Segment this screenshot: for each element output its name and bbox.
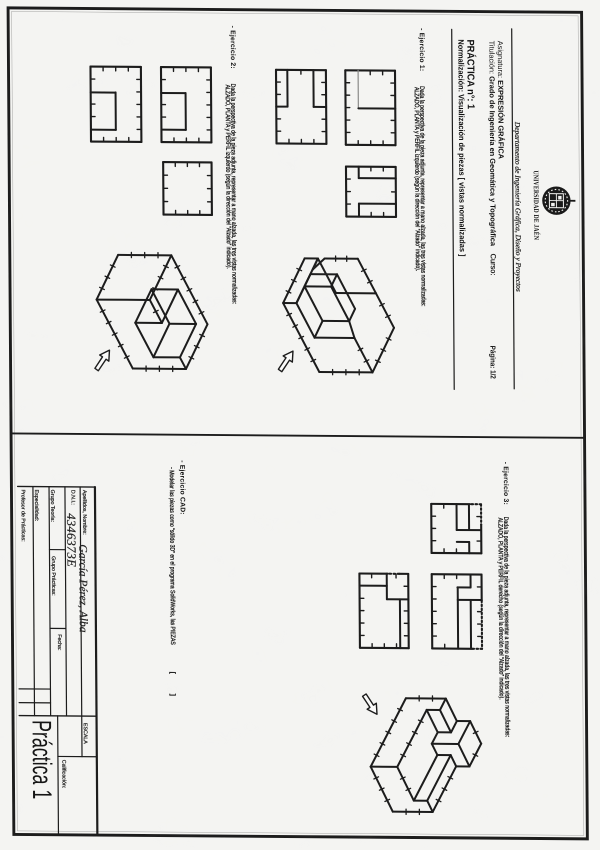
svg-text:ALZADO, PLANTA y PERFIL izquie: ALZADO, PLANTA y PERFIL izquierdo (según… bbox=[413, 87, 421, 272]
svg-text:4346373E: 4346373E bbox=[64, 513, 78, 567]
svg-text:]: ] bbox=[169, 694, 176, 696]
svg-text:D.N.I.:: D.N.I.: bbox=[69, 490, 75, 505]
svg-text:Normalización: Visualización d: Normalización: Visualización de piezas [… bbox=[456, 39, 467, 257]
svg-text:- Ejercicio CAD:: - Ejercicio CAD: bbox=[178, 460, 185, 515]
svg-text:Curso:: Curso: bbox=[489, 254, 498, 276]
svg-text:- Ejercicio 3:: - Ejercicio 3: bbox=[502, 462, 509, 505]
svg-text:- Ejercicio 1:: - Ejercicio 1: bbox=[418, 28, 425, 71]
svg-text:Grupo Prácticas:: Grupo Prácticas: bbox=[50, 556, 56, 595]
svg-text:Página: 1/2: Página: 1/2 bbox=[488, 346, 496, 379]
svg-text:Profesor de Prácticas:: Profesor de Prácticas: bbox=[19, 489, 25, 541]
svg-text:Departamento de Ingeniería Grá: Departamento de Ingeniería Gráfica, Dise… bbox=[513, 121, 523, 292]
svg-text:- Ejercicio 2:: - Ejercicio 2: bbox=[229, 26, 236, 69]
svg-text:Fecha:: Fecha: bbox=[56, 634, 62, 650]
svg-text:Asignatura: EXPRESIÓN GRÁFICA: Asignatura: EXPRESIÓN GRÁFICA bbox=[496, 41, 506, 160]
svg-text:Especialidad:: Especialidad: bbox=[33, 490, 39, 522]
svg-text:Titulación: Grado de Ingenierí: Titulación: Grado de Ingeniería en Geomá… bbox=[487, 41, 497, 247]
svg-text:Práctica 1: Práctica 1 bbox=[27, 720, 58, 799]
svg-text:Apellidos, Nombre:: Apellidos, Nombre: bbox=[81, 490, 87, 535]
svg-text:UNIVERSIDAD DE JAÉN: UNIVERSIDAD DE JAÉN bbox=[531, 170, 540, 240]
svg-text:[: [ bbox=[169, 672, 176, 675]
svg-text:ESCALA: ESCALA bbox=[82, 723, 88, 744]
svg-text:- Modelar las piezas como “sól: - Modelar las piezas como “sólido 3D” en… bbox=[168, 467, 176, 645]
svg-text:ALZADO, PLANTA y PERFIL izquie: ALZADO, PLANTA y PERFIL izquierdo (según… bbox=[223, 85, 231, 270]
svg-text:Calificación:: Calificación: bbox=[60, 760, 66, 789]
svg-text:ALZADO, PLANTA y PERFIL derech: ALZADO, PLANTA y PERFIL derecho (según l… bbox=[496, 518, 504, 700]
svg-text:Grupo Teoría:: Grupo Teoría: bbox=[49, 490, 55, 522]
